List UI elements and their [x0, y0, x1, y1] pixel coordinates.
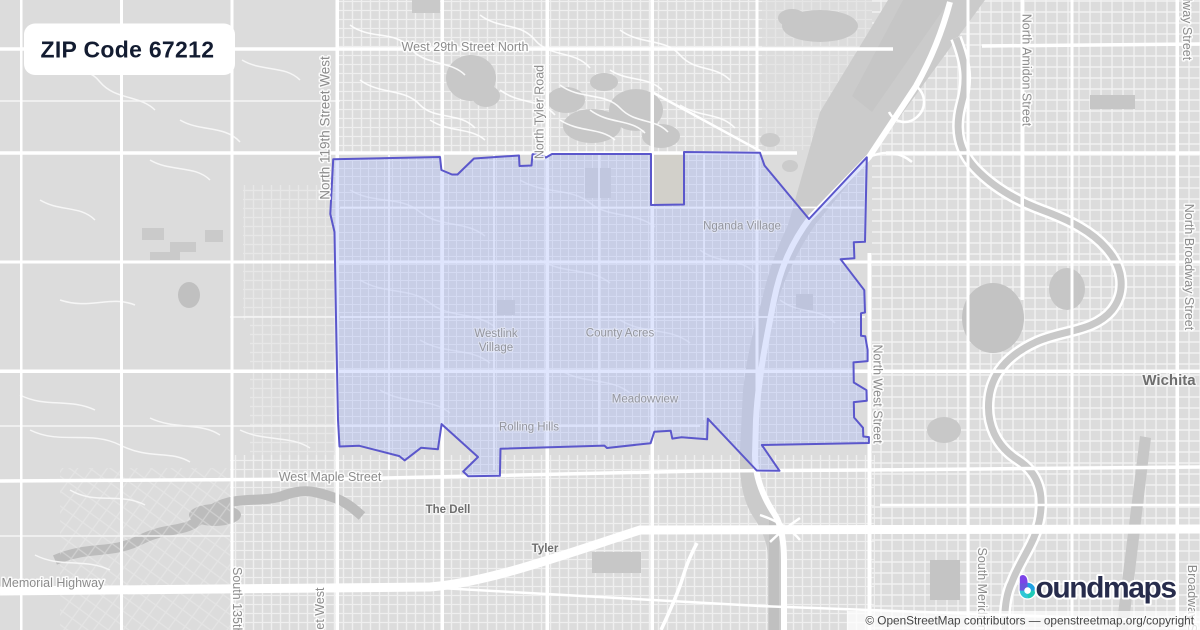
- svg-text:North West Street: North West Street: [871, 344, 885, 444]
- svg-text:Rolling Hills: Rolling Hills: [499, 422, 559, 434]
- svg-text:West 29th Street North: West 29th Street North: [402, 40, 529, 54]
- svg-text:West Maple Street: West Maple Street: [279, 470, 382, 484]
- svg-text:ZIP Code 67212: ZIP Code 67212: [41, 37, 215, 63]
- svg-text:Meadowview: Meadowview: [612, 394, 679, 406]
- svg-text:© OpenStreetMap contributors —: © OpenStreetMap contributors — openstree…: [865, 614, 1194, 628]
- svg-text:South 119th Street West: South 119th Street West: [313, 587, 327, 630]
- svg-text:North Broadway Street: North Broadway Street: [1180, 0, 1194, 61]
- svg-text:oundmaps: oundmaps: [1036, 572, 1177, 605]
- svg-text:County Acres: County Acres: [586, 328, 655, 340]
- svg-text:Village: Village: [479, 342, 513, 354]
- svg-text:North Amidon Street: North Amidon Street: [1020, 14, 1034, 127]
- svg-text:s Memorial Highway: s Memorial Highway: [0, 576, 105, 590]
- svg-text:South 135th Street West: South 135th Street West: [230, 567, 244, 630]
- svg-text:Wichita: Wichita: [1142, 372, 1196, 389]
- svg-text:North Tyler Road: North Tyler Road: [533, 65, 547, 159]
- svg-text:The Dell: The Dell: [426, 504, 471, 516]
- svg-text:North Broadway Street: North Broadway Street: [1182, 204, 1196, 331]
- svg-text:Westlink: Westlink: [474, 328, 517, 340]
- svg-text:Nganda Village: Nganda Village: [703, 221, 781, 233]
- svg-text:North 119th Street West: North 119th Street West: [318, 56, 333, 200]
- svg-text:Tyler: Tyler: [532, 543, 559, 555]
